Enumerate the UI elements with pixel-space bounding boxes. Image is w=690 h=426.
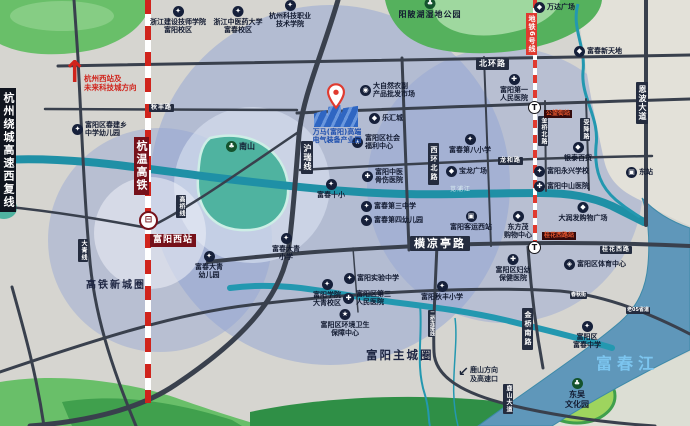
gongwang-station-label: 公望街站 [544,110,572,118]
hospital-cross-icon: ✚ [508,254,519,265]
road-label-longhe: 龙和路 [498,157,523,165]
mall-icon: ◆ [513,211,524,222]
road-label-shoujiang: 受降路 [580,118,590,141]
hospital-cross-icon: ✚ [509,74,520,85]
road-label-west-ring-north: 西环北路 [428,143,439,185]
poi-bus-west-station: ▣富阳客运西站 [450,211,492,231]
poi-tcm-bone-hospital: ✚富阳中医 骨伤医院 [362,168,403,185]
road-label-chunqiu: 春秋街 [570,292,587,299]
mall-icon: ◆ [446,166,457,177]
poi-maternity-hospital: ✚富阳区妇幼 保健医院 [496,254,531,283]
industrial-park-name: 万马(富阳)高端 电气装备产业园 [313,128,362,145]
poi-no4-kindergarten: ✦富春第四幼儿园 [361,215,423,226]
poi-no10-primary: ✦富春十小 [317,179,345,199]
mall-icon: ◆ [573,142,584,153]
school-icon: ✦ [361,215,372,226]
road-label-ring-expressway: 杭州绕城高速西复线 [0,88,16,212]
road-label-enbo-avenue: 恩波大道 [636,82,648,124]
road-label-hurui-line: 沪瑞线 [301,141,313,174]
fuyang-area-map: 杭州绕城高速西复线 ↑ 杭州西站及 未来科技城方向 杭温高铁 ⊟ 富阳西站 地铁… [0,0,690,426]
zone-label-main-city: 富阳主城圈 [366,347,434,363]
poi-bus-east-station: ▣东站 [626,167,653,178]
poi-fuchun-middle: ✦富阳区 富春中学 [573,321,601,350]
road-label-hengliangting: 横凉亭路 [410,236,470,251]
school-icon: ✦ [72,124,83,135]
school-icon: ✦ [326,179,337,190]
poi-fuchun-new-world: ◆富春新天地 [574,46,622,57]
school-icon: ✦ [322,279,333,290]
road-label-jinqiao-south: 金桥南路 [522,308,533,350]
metro-station-icon-gongwang: T [528,101,541,114]
poi-qiufeng-primary: ✦富阳秋丰小学 [421,281,463,301]
road-label-jinqiao-north: 金桥北路 [538,116,548,146]
fuchun-river-name: 富春江 [596,350,659,374]
road-label-qiufeng: 秋丰路 [149,104,174,112]
poi-construction-college: ✦浙江建设技师学院 富阳校区 [150,6,206,35]
poi-yangpohu-park: ♣阳陂湖湿地公园 [399,0,462,20]
zone-label-hsr-new-town: 高铁新城圈 [86,276,146,291]
market-icon: ◉ [360,85,371,96]
road-label-lushan-avenue: 鹿山大道 [503,384,513,414]
poi-tcm-university: ✦浙江中医药大学 富春校区 [214,6,263,35]
guihuaxilu-station-label: 桂花西路站 [542,232,576,240]
poi-chunjian-kindergarten: ✦富阳区春建乡 中学幼儿园 [72,121,127,138]
government-icon: ★ [340,309,351,320]
school-icon: ✦ [281,233,292,244]
poi-dongwu-culture-park: ♣东吴 文化园 [565,378,589,409]
lushan-arrow-icon: ↙ [458,366,469,379]
park-tree-icon: ♣ [425,0,436,9]
poi-zhongshan-hospital: ✚富阳中山医院 [534,181,589,192]
school-icon: ✦ [582,321,593,332]
metro-station-icon-guihuaxilu: T [528,241,541,254]
hospital-cross-icon: ✚ [362,171,373,182]
road-label-daqing-line: 大青线 [78,239,88,262]
school-icon: ✦ [437,281,448,292]
hospital-cross-icon: ✚ [343,293,354,304]
poi-no8-primary: ✦富春第八小学 [449,134,491,154]
mall-icon: ◆ [574,46,585,57]
poi-yongxing-school: ✦富阳永兴学校 [534,166,589,177]
green-south-band [250,397,522,426]
lushan-note: 鹿山方向 及高速口 [470,366,498,384]
road-label-guihua-west: 桂花西路 [600,246,632,254]
metro-line6-label: 地铁6号线 [526,13,537,55]
location-pin-icon [326,82,346,114]
school-icon: ✦ [344,273,355,284]
green-northwest-light [10,1,114,31]
fuyang-west-station-label: 富阳西站 [150,234,196,247]
park-tree-icon: ♣ [226,141,237,152]
bus-icon: ▣ [626,167,637,178]
road-label-north-ring: 北环路 [476,58,509,70]
poi-first-hospital: ✚富阳第一 人民医院 [500,74,528,103]
school-icon: ✦ [173,6,184,17]
poi-rtmart: ◆大润发购物广场 [559,202,608,222]
poi-sanitation-center: ★富阳区环境卫生 保障中心 [321,309,370,338]
canal-name: 苋浦江 [450,184,471,193]
road-label-gaoqiao-line: 高桥线 [176,195,186,218]
road-label-old-s05: 老05省道 [626,307,650,314]
road-label-erqiao-link: 二桥连接线 [428,310,435,337]
poi-powerlong-plaza: ◆宝龙广场 [446,166,487,177]
poi-daqing-primary: ✦富春大青 小学 [272,233,300,262]
mall-icon: ◆ [534,2,545,13]
poi-daqing-kindergarten: ✦富春大青 幼儿园 [195,251,223,280]
direction-note: 杭州西站及 未来科技城方向 [84,74,137,93]
sport-icon: ◈ [564,259,575,270]
school-icon: ✦ [285,0,296,11]
poi-dongfangmao-mall: ◆东方茂 购物中心 [504,211,532,240]
poi-nature-market: ◉大自然农副 产品批发市场 [360,82,415,99]
mall-icon: ◆ [369,113,380,124]
poi-experimental-middle: ✦富阳实验中学 [344,273,399,284]
poi-nanshan: ♣南山 [226,141,255,152]
poi-fuyang-college-daqing: ✦富阳学院 大青校区 [313,279,341,308]
poi-hz-tech-college: ✦杭州科技职业 技术学院 [269,0,311,29]
bus-icon: ▣ [466,211,477,222]
poi-intime-store: ◆银泰百货 [564,142,592,162]
school-icon: ✦ [465,134,476,145]
poi-lehui-city: ◆乐汇城 [369,113,403,124]
school-icon: ✦ [204,251,215,262]
mall-icon: ◆ [578,202,589,213]
school-icon: ✦ [233,6,244,17]
park-tree-icon: ♣ [572,378,583,389]
train-station-icon: ⊟ [139,211,158,230]
school-icon: ✦ [361,201,372,212]
poi-no3-middle: ✦富春第三中学 [361,201,416,212]
hospital-cross-icon: ✚ [534,181,545,192]
poi-no3-people-hospital: ✚富阳区第三 人民医院 [343,290,391,307]
poi-sports-center: ◈富阳区体育中心 [564,259,626,270]
hangwen-hsr-label: 杭温高铁 [134,137,149,195]
poi-wanda-plaza: ◆万达广场 [534,2,575,13]
school-icon: ✦ [534,166,545,177]
